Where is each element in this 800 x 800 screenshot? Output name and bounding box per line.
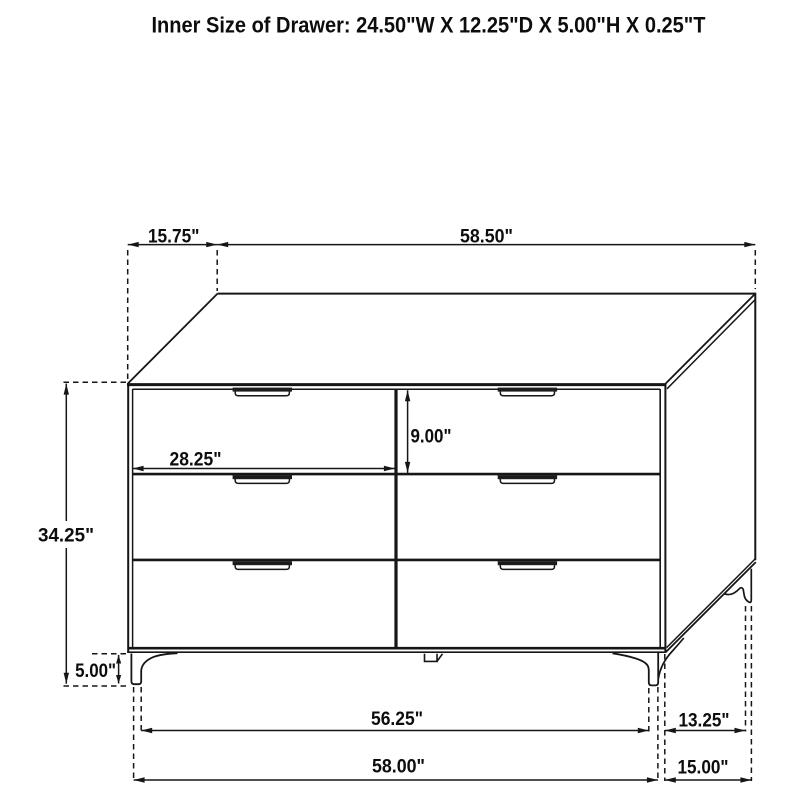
- svg-text:58.00": 58.00": [372, 757, 425, 778]
- svg-text:56.25": 56.25": [371, 709, 423, 730]
- svg-text:34.25": 34.25": [38, 526, 94, 547]
- svg-text:15.75": 15.75": [148, 226, 200, 247]
- svg-text:58.50": 58.50": [460, 226, 513, 247]
- svg-text:9.00": 9.00": [411, 427, 452, 448]
- svg-text:13.25": 13.25": [679, 711, 730, 732]
- svg-text:15.00": 15.00": [678, 758, 729, 779]
- svg-text:28.25": 28.25": [170, 450, 222, 471]
- svg-text:Inner Size of Drawer: 24.50"W: Inner Size of Drawer: 24.50"W X 12.25"D …: [152, 13, 707, 38]
- svg-text:5.00": 5.00": [75, 661, 116, 682]
